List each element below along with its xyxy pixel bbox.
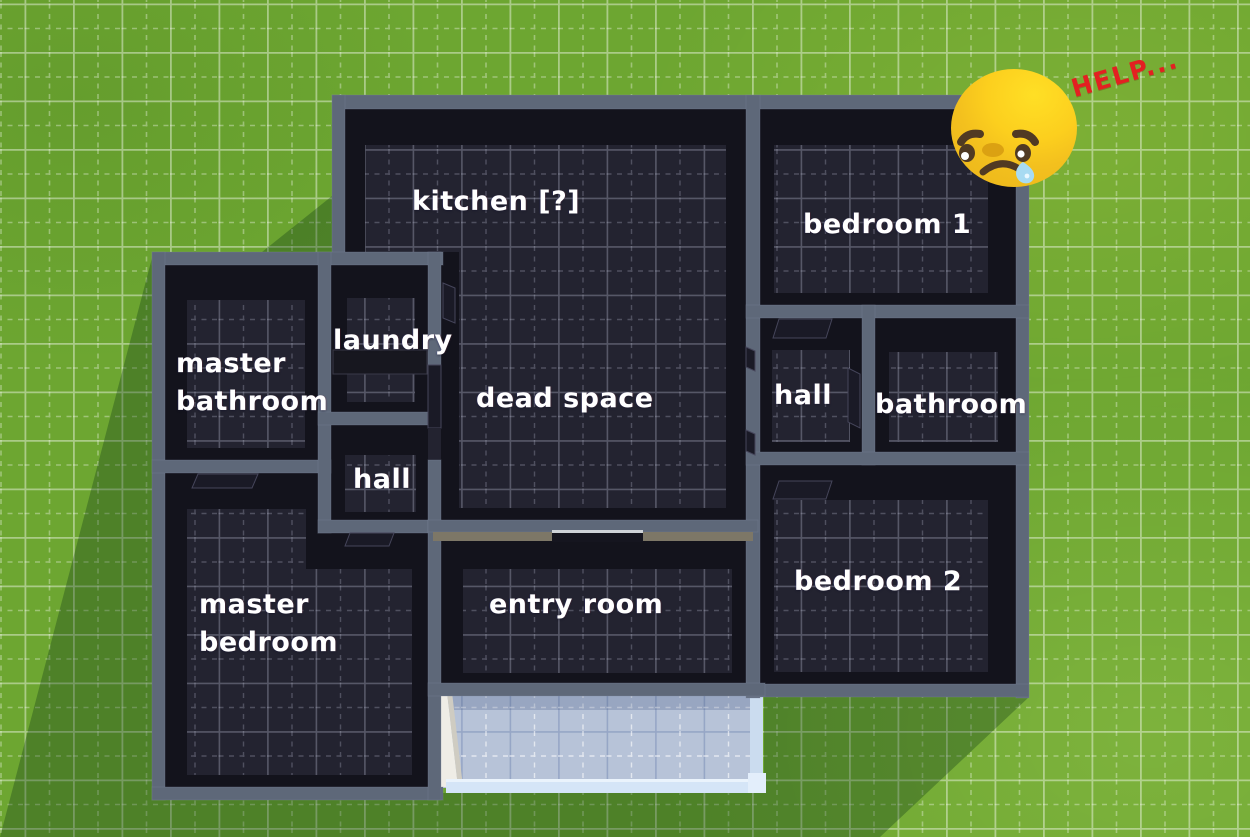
wall-kitchen-left <box>332 95 345 264</box>
wall-bedroom1-bottom <box>746 305 1029 318</box>
sims-build-mode-screenshot: kitchen [?] bedroom 1 laundry master bat… <box>0 0 1250 837</box>
opening-lintel <box>552 530 643 533</box>
emoji-eye-shine-left <box>961 152 969 160</box>
wall-exterior-left <box>152 252 165 800</box>
wall-hall-bathroom-bottom <box>746 452 1029 465</box>
door-bedroom2-top[interactable] <box>773 481 832 499</box>
wall-wing-right-upper <box>428 252 441 365</box>
washer-dryer-counter[interactable] <box>333 350 427 374</box>
door-hall-lower-bottom[interactable] <box>345 533 394 546</box>
opening-hall-dead-space <box>428 428 441 460</box>
door-laundry-dead-space[interactable] <box>428 365 441 428</box>
wall-center-vertical <box>746 95 760 698</box>
door-frame-dead-space-upper[interactable] <box>746 347 755 371</box>
wall-bedroom2-bottom <box>746 684 1029 697</box>
door-frame-laundry[interactable] <box>443 283 455 323</box>
porch-railing-top-edge <box>446 779 764 782</box>
wall-exterior-top <box>332 95 1029 109</box>
wall-laundry-bottom <box>318 412 441 425</box>
room-bathroom[interactable] <box>875 318 1016 452</box>
wall-entry-bottom <box>428 683 765 696</box>
door-hall-upper-top[interactable] <box>773 319 832 338</box>
tear-highlight <box>1025 174 1030 179</box>
door-frame-dead-space-lower[interactable] <box>746 430 755 455</box>
porch-railing-post <box>748 773 766 793</box>
crying-emoji-sticker <box>951 69 1077 187</box>
door-hall-bathroom[interactable] <box>848 368 860 428</box>
room-hall-lower[interactable] <box>331 425 428 520</box>
wall-master-bathroom-bottom <box>152 460 331 473</box>
wall-hall-bathroom-divider <box>862 305 875 465</box>
wall-hall-lower-bottom <box>318 520 441 533</box>
emoji-eye-shine-right <box>1017 150 1024 157</box>
room-laundry[interactable] <box>331 265 428 412</box>
emoji-nose <box>982 143 1004 157</box>
wall-master-bedroom-bottom <box>152 787 443 800</box>
room-entry[interactable] <box>441 533 746 683</box>
wall-master-bathroom-right <box>318 252 331 533</box>
wall-wing-right-lower <box>428 460 441 800</box>
room-master-bathroom[interactable] <box>165 265 318 460</box>
floorplan-canvas <box>0 0 1250 837</box>
wall-wing-top <box>152 252 443 265</box>
door-master-bathroom[interactable] <box>192 474 258 488</box>
porch[interactable] <box>433 692 766 793</box>
